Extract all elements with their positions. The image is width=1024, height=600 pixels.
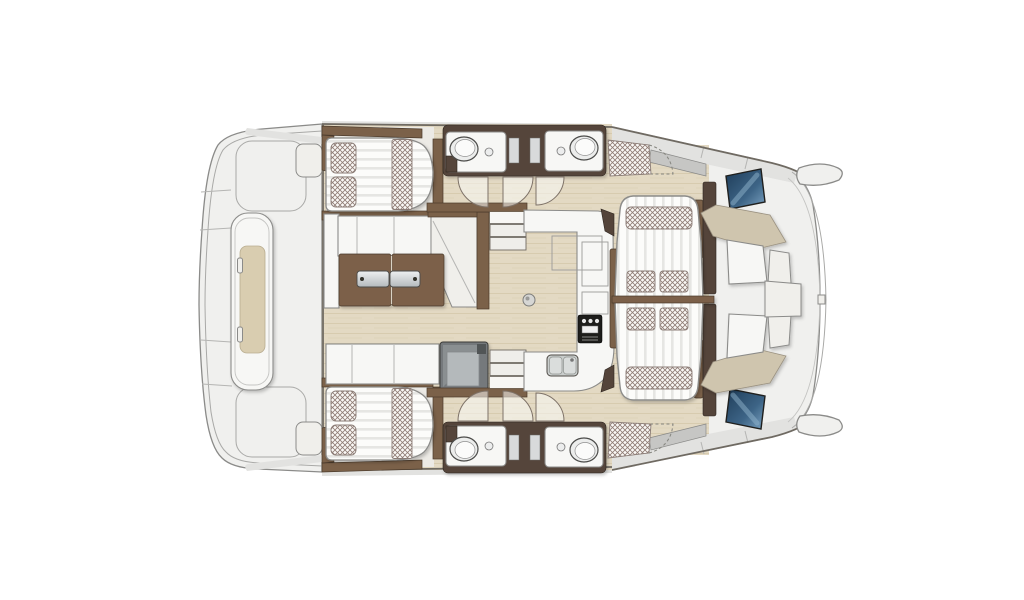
- cockpit-bench-starboard: [727, 314, 767, 358]
- sink-faucet: [570, 358, 574, 362]
- sink-basin: [575, 139, 595, 156]
- sofa-trim-side: [477, 212, 489, 309]
- bathroom-pods-starboard: [443, 422, 606, 473]
- aft-lounge-notch-2: [238, 327, 243, 342]
- handle-pin: [360, 277, 364, 281]
- hull-cleat: [818, 295, 825, 304]
- sunbed-pillow: [627, 271, 655, 292]
- faucet: [485, 148, 493, 156]
- salon: [324, 207, 489, 390]
- helm-seat-port: [608, 140, 651, 176]
- stove-knob: [582, 319, 586, 323]
- bulkhead-port: [703, 182, 716, 294]
- salon-sofa-port: [338, 216, 431, 256]
- sink-basin: [455, 442, 475, 459]
- sunbed-pillow: [660, 308, 688, 330]
- bed-pillow: [331, 177, 356, 207]
- stair-top-tread: [490, 376, 526, 388]
- cockpit-table: [765, 281, 801, 317]
- sunbed: [612, 196, 714, 400]
- wardrobe-wall: [433, 139, 443, 211]
- bulkhead-starboard: [703, 304, 716, 416]
- bed-pillow: [331, 143, 356, 173]
- port-bed: [326, 138, 433, 211]
- stairs-starboard: [490, 350, 526, 388]
- shower-column: [530, 435, 540, 460]
- deck-bolster-port: [296, 144, 322, 177]
- floor-drain: [523, 294, 535, 306]
- stairs-port: [490, 212, 526, 250]
- door-swings-port: [458, 177, 564, 207]
- stair-top-tread: [490, 212, 526, 224]
- wardrobe-wall: [433, 387, 443, 459]
- sunbed-split-band: [612, 296, 714, 303]
- aft-lounge-notch-1: [238, 258, 243, 273]
- sink-basin: [575, 443, 595, 460]
- door-swings-starboard: [458, 391, 564, 421]
- faucet: [557, 147, 565, 155]
- salon-sofa-starboard: [326, 344, 439, 384]
- catamaran-floor-plan: [0, 0, 1024, 600]
- cooler-hinge: [477, 344, 486, 354]
- handle-pin: [413, 277, 417, 281]
- stove-knob: [588, 319, 592, 323]
- shower-column: [509, 138, 519, 163]
- bed-pillow: [331, 425, 356, 455]
- cockpit-side-panel: [768, 250, 791, 284]
- shower-column: [509, 435, 519, 460]
- sunbed-pillow: [627, 308, 655, 330]
- midship-sunbed-lounge: [610, 182, 716, 416]
- bed-foot-runner: [392, 389, 412, 459]
- aft-platform: [199, 124, 322, 472]
- sunbed-checker-band: [626, 367, 692, 389]
- stove: [578, 315, 602, 343]
- starboard-bed: [326, 387, 433, 460]
- cockpit-side-panel: [768, 314, 791, 348]
- sink-basin: [455, 140, 475, 157]
- deck-bolster-starboard: [296, 422, 322, 455]
- sofa-armrest: [324, 214, 339, 308]
- sink-basin: [564, 357, 577, 374]
- bathroom-pods-port: [443, 125, 606, 176]
- cockpit-bench-port: [727, 240, 767, 284]
- galley-sink: [547, 355, 578, 376]
- helm-seat-starboard: [608, 422, 651, 458]
- cooler-lid: [447, 352, 479, 386]
- sunbed-pillow: [660, 271, 688, 292]
- faucet: [485, 442, 493, 450]
- stove-knob: [595, 319, 599, 323]
- floor-drain-dot: [526, 297, 530, 301]
- shower-column: [530, 138, 540, 163]
- cooler-box: [440, 342, 488, 390]
- sink-basin: [550, 357, 563, 374]
- stove-display: [582, 326, 598, 333]
- sunbed-checker-band: [626, 207, 692, 229]
- salon-table: [339, 254, 444, 306]
- catamaran-floor-plan-page: [0, 0, 1024, 600]
- aft-lounge-seat: [231, 213, 273, 390]
- faucet: [557, 443, 565, 451]
- bed-foot-runner: [392, 140, 412, 210]
- aft-lounge-cushion: [240, 246, 265, 353]
- bed-pillow: [331, 391, 356, 421]
